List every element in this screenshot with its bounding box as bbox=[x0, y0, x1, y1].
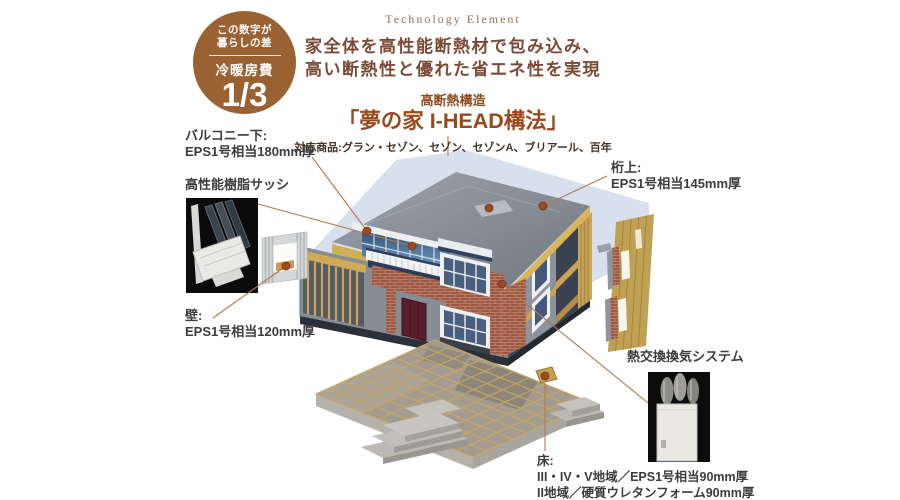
header-eyebrow: Technology Element bbox=[277, 12, 629, 27]
page-title: 「夢の家 I-HEAD構法」 bbox=[277, 109, 629, 133]
callout-dot bbox=[539, 202, 547, 210]
header-subtitle: 高断熱構造 bbox=[277, 90, 629, 109]
callout-label-floor: 床: III・IV・V地域／EPS1号相当90mm厚 II地域／硬質ウレタンフォ… bbox=[537, 453, 754, 500]
window-sash-photo bbox=[186, 198, 258, 293]
callout-dot bbox=[282, 262, 290, 270]
callout-spec: EPS1号相当145mm厚 bbox=[611, 176, 741, 192]
callout-label-heat-exchange-ventilation: 熱交換換気システム bbox=[627, 349, 744, 365]
header-copy: 家全体を高性能断熱材で包み込み、 高い断熱性と優れた省エネ性を実現 bbox=[277, 35, 629, 81]
ventilation-unit-photo bbox=[648, 372, 710, 462]
callout-label-balcony-under: バルコニー下: EPS1号相当180mm厚 bbox=[185, 128, 315, 160]
callout-dot bbox=[485, 204, 493, 212]
header-copy-line2: 高い断熱性と優れた省エネ性を実現 bbox=[277, 58, 629, 81]
callout-line bbox=[312, 157, 367, 231]
callout-title: 熱交換換気システム bbox=[627, 349, 744, 365]
callout-dot bbox=[408, 242, 416, 250]
header: Technology Element 家全体を高性能断熱材で包み込み、 高い断熱… bbox=[277, 0, 629, 155]
callout-spec: EPS1号相当180mm厚 bbox=[185, 144, 315, 160]
callout-dot bbox=[363, 227, 371, 235]
callout-dot bbox=[541, 372, 549, 380]
badge-divider bbox=[209, 55, 281, 56]
header-copy-line1: 家全体を高性能断熱材で包み込み、 bbox=[277, 35, 629, 58]
callout-title: バルコニー下: bbox=[185, 128, 315, 144]
floor-slab bbox=[316, 340, 604, 469]
callout-title: 壁: bbox=[185, 308, 315, 324]
callout-label-above-girder: 桁上: EPS1号相当145mm厚 bbox=[611, 160, 741, 192]
callout-spec: II地域／硬質ウレタンフォーム90mm厚 bbox=[537, 485, 754, 500]
house-body bbox=[300, 172, 592, 366]
insulation-infographic: この数字が 暮らしの差 冷暖房費 1/3 Technology Element … bbox=[0, 0, 900, 500]
callout-title: 高性能樹脂サッシ bbox=[185, 177, 289, 193]
callout-dot bbox=[498, 280, 506, 288]
entrance-door bbox=[402, 298, 426, 341]
callout-spec: EPS1号相当120mm厚 bbox=[185, 324, 315, 340]
callout-spec: III・IV・V地域／EPS1号相当90mm厚 bbox=[537, 469, 754, 485]
header-products: 対応商品:グラン・セゾン、セゾン、セゾンA、ブリアール、百年 bbox=[277, 139, 629, 155]
wall-panel-sample bbox=[262, 232, 307, 284]
callout-label-resin-sash: 高性能樹脂サッシ bbox=[185, 177, 289, 193]
callout-title: 桁上: bbox=[611, 160, 741, 176]
callout-label-wall: 壁: EPS1号相当120mm厚 bbox=[185, 308, 315, 340]
callout-title: 床: bbox=[537, 453, 754, 469]
